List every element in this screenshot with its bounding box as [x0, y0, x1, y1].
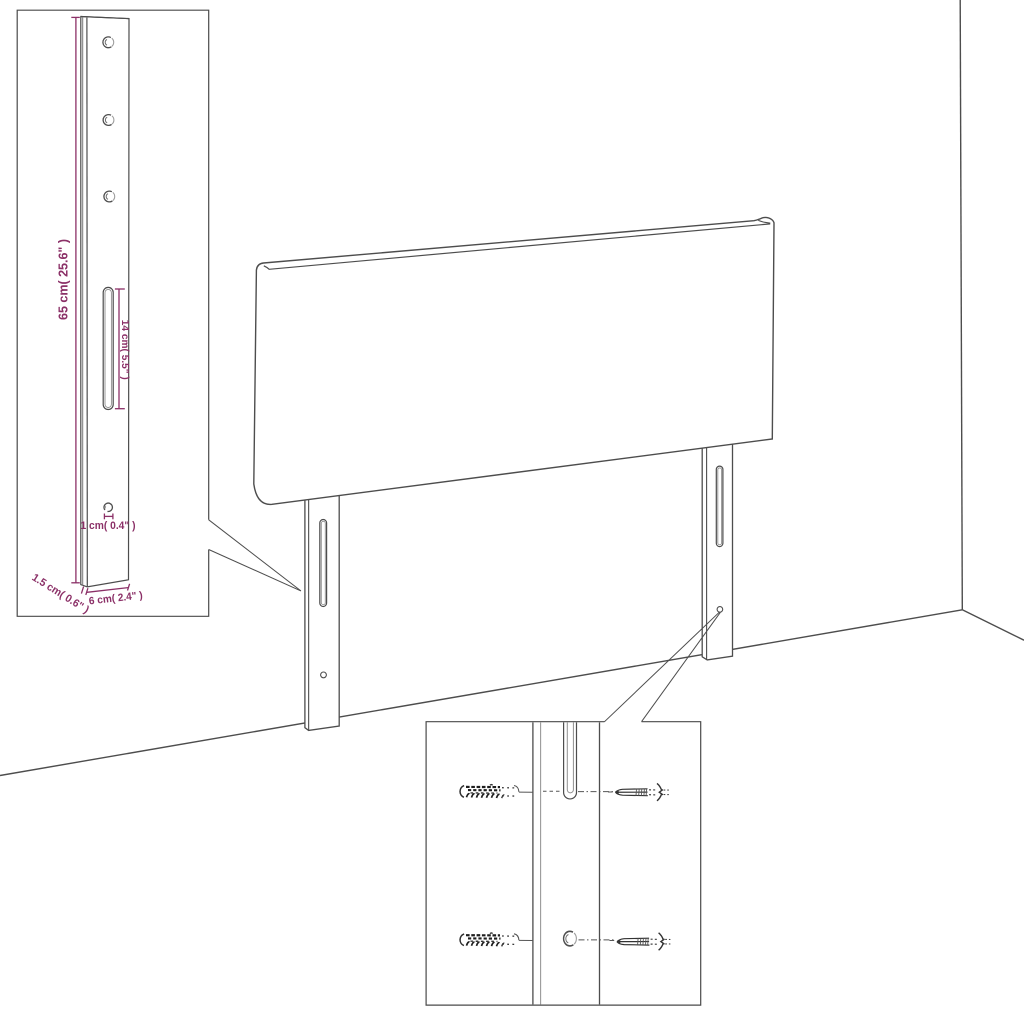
svg-text:1 cm( 0.4" ): 1 cm( 0.4" ) [81, 520, 136, 532]
svg-text:65 cm( 25.6" ): 65 cm( 25.6" ) [57, 239, 71, 320]
svg-text:14 cm( 5.5" ): 14 cm( 5.5" ) [119, 320, 130, 380]
